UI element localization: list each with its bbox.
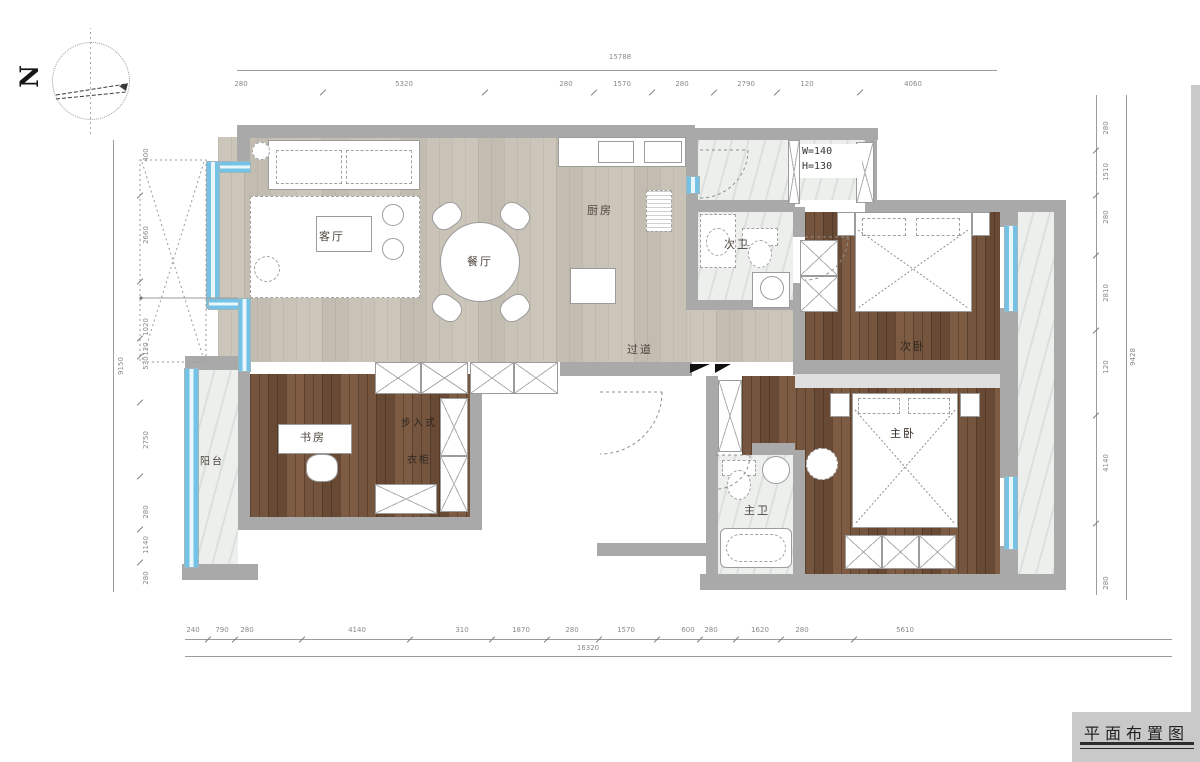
dim-tick	[773, 89, 779, 95]
drawing-title: 平面布置图	[1084, 720, 1189, 744]
dim-label: 280	[559, 80, 572, 88]
dim-line-bottom-seg	[185, 639, 1172, 640]
dim-label: 16320	[577, 644, 599, 652]
room-label-kitchen: 厨房	[587, 202, 613, 218]
wardrobe	[800, 276, 838, 312]
dim-line-top-total	[237, 70, 997, 71]
door-threshold-wedge	[690, 364, 710, 373]
cabinet-note: W=140 H=130	[800, 144, 862, 178]
wall	[686, 137, 698, 176]
dim-label: 1570	[613, 80, 631, 88]
wall	[1000, 546, 1018, 578]
floor-lamp	[252, 142, 270, 160]
dim-label: 2660	[142, 226, 150, 244]
sofa-cushion	[276, 150, 342, 184]
dim-label: 280	[675, 80, 688, 88]
dim-label: 9150	[117, 357, 125, 375]
dim-label: 1510	[1102, 163, 1110, 181]
nightstand	[837, 212, 855, 236]
dim-label: 280	[1102, 121, 1110, 134]
window-bay-left	[206, 161, 220, 309]
dim-tick	[591, 89, 597, 95]
wall-bedroom-divider	[795, 360, 1006, 374]
wall	[865, 200, 1066, 212]
dim-line-right-total	[1126, 95, 1127, 600]
floor-plan: W=140 H=130 客厅 餐厅 厨房 次卫 过道 次卧 主卧	[0, 0, 1200, 762]
hall-cabinet	[514, 362, 558, 394]
dim-tick	[649, 89, 655, 95]
kitchen-cabinet-note	[646, 190, 672, 232]
dim-label: 1570	[617, 626, 635, 634]
dim-label: 310	[455, 626, 468, 634]
dim-tick	[319, 89, 325, 95]
dim-tick	[137, 335, 143, 341]
room-label-balcony: 阳台	[200, 453, 224, 468]
dim-line-left-total	[113, 140, 114, 592]
dim-line-bottom-total	[185, 656, 1172, 657]
dim-label: 120	[1102, 360, 1110, 373]
wall	[752, 443, 795, 455]
wash-basin	[762, 456, 790, 484]
dim-label: 4140	[348, 626, 366, 634]
washing-machine-drum	[760, 276, 784, 300]
room-label-dining: 餐厅	[467, 253, 493, 269]
window-guest-bedroom	[1004, 225, 1018, 312]
pillow	[862, 218, 906, 236]
nightstand	[830, 393, 850, 417]
dim-label: 790	[215, 626, 228, 634]
dim-tick	[137, 526, 143, 532]
dim-label: 280	[142, 571, 150, 584]
door-threshold-wedge	[715, 364, 731, 373]
dim-label: 280	[1102, 210, 1110, 223]
dim-label: 600	[681, 626, 694, 634]
room-label-guest-bath: 次卫	[724, 236, 750, 252]
dim-label: 530	[142, 356, 150, 369]
side-chair	[382, 238, 404, 260]
dim-label: 280	[142, 505, 150, 518]
window-sill-right	[1016, 212, 1054, 578]
title-underline-thick	[1080, 742, 1194, 745]
desk-chair	[306, 454, 338, 482]
dim-tick	[857, 89, 863, 95]
nightstand	[972, 212, 990, 236]
floor-hallway	[690, 308, 795, 362]
dim-label: 4060	[904, 80, 922, 88]
wall	[470, 390, 482, 530]
dim-label: 1140	[142, 536, 150, 554]
dim-label: 1020	[142, 318, 150, 336]
closet-cabinet	[421, 362, 468, 394]
fridge	[570, 268, 616, 304]
dresser	[882, 535, 919, 569]
pillow	[908, 398, 950, 414]
window-master-bedroom	[1004, 476, 1018, 550]
dim-tick	[711, 89, 717, 95]
room-label-study: 书房	[300, 429, 326, 445]
wall	[698, 200, 795, 212]
dim-tick	[137, 278, 143, 284]
dim-label: 400	[142, 148, 150, 161]
wall	[793, 207, 805, 237]
dresser	[845, 535, 882, 569]
closet-cabinet	[375, 484, 437, 514]
side-chair	[382, 204, 404, 226]
pouf	[254, 256, 280, 282]
wall	[560, 362, 692, 376]
dim-tick	[137, 473, 143, 479]
closet-cabinet	[375, 362, 421, 394]
north-arrow-circle	[52, 42, 130, 120]
toilet-bowl	[748, 240, 772, 268]
room-label-closet: 步入式 衣柜	[401, 392, 437, 488]
cabinet-note-h: H=130	[802, 159, 862, 174]
closet-label-line1: 步入式	[401, 414, 437, 429]
dim-label: 4140	[1102, 454, 1110, 472]
dim-label: 280	[1102, 576, 1110, 589]
right-edge-strip	[1191, 85, 1200, 715]
dim-label: 280	[240, 626, 253, 634]
room-label-hallway: 过道	[627, 341, 653, 357]
pillow	[916, 218, 960, 236]
dim-label: 2790	[737, 80, 755, 88]
wardrobe	[800, 240, 838, 276]
window-balcony	[184, 368, 199, 568]
dim-label: 240	[186, 626, 199, 634]
window-living-left	[238, 298, 251, 372]
dim-label: 280	[795, 626, 808, 634]
room-label-guest-bedroom: 次卧	[900, 338, 926, 354]
wall-outer-right	[1054, 212, 1066, 578]
dresser	[919, 535, 956, 569]
dim-label: 2750	[142, 431, 150, 449]
dim-tick	[137, 192, 143, 198]
north-label: N	[15, 65, 44, 88]
wall	[793, 450, 805, 576]
room-label-living: 客厅	[319, 228, 345, 244]
cabinet-master-nook	[718, 380, 742, 452]
dim-label: 1620	[751, 626, 769, 634]
plant	[806, 448, 838, 480]
corridor-door-arc	[600, 392, 662, 454]
wall	[706, 376, 718, 576]
dim-tick	[137, 559, 143, 565]
dim-label: 280	[234, 80, 247, 88]
window-kitchen-glass	[686, 176, 700, 194]
room-label-master-bedroom: 主卧	[890, 425, 916, 441]
toilet-bowl	[727, 470, 751, 500]
wall	[597, 543, 713, 556]
dim-label: 5320	[395, 80, 413, 88]
dim-label: 120	[800, 80, 813, 88]
wall	[688, 128, 878, 140]
dim-label: 1870	[512, 626, 530, 634]
dim-label: 280	[565, 626, 578, 634]
pillow	[858, 398, 900, 414]
wall	[238, 517, 482, 530]
cabinet-note-w: W=140	[802, 144, 862, 159]
dim-label: 280	[704, 626, 717, 634]
nightstand	[960, 393, 980, 417]
closet-cabinet	[440, 456, 468, 512]
room-label-master-bath: 主卫	[744, 502, 770, 518]
wall	[686, 192, 698, 310]
bathtub-inner	[726, 534, 786, 562]
dim-label: 5610	[896, 626, 914, 634]
dim-label: 15788	[609, 53, 631, 61]
north-arrow-axis	[90, 28, 91, 134]
wall	[238, 370, 250, 530]
dim-tick	[137, 399, 143, 405]
hall-cabinet	[470, 362, 514, 394]
closet-cabinet	[440, 398, 468, 456]
entry-cabinet	[788, 140, 800, 204]
dim-label: 2810	[1102, 284, 1110, 302]
closet-label-line2: 衣柜	[401, 451, 437, 466]
title-underline-thin	[1080, 748, 1194, 749]
dim-tick	[482, 89, 488, 95]
wall	[795, 374, 1006, 388]
wall	[1000, 308, 1018, 478]
dim-label: 9428	[1129, 348, 1137, 366]
kitchen-stove	[644, 141, 682, 163]
kitchen-sink	[598, 141, 634, 163]
sofa-cushion	[346, 150, 412, 184]
